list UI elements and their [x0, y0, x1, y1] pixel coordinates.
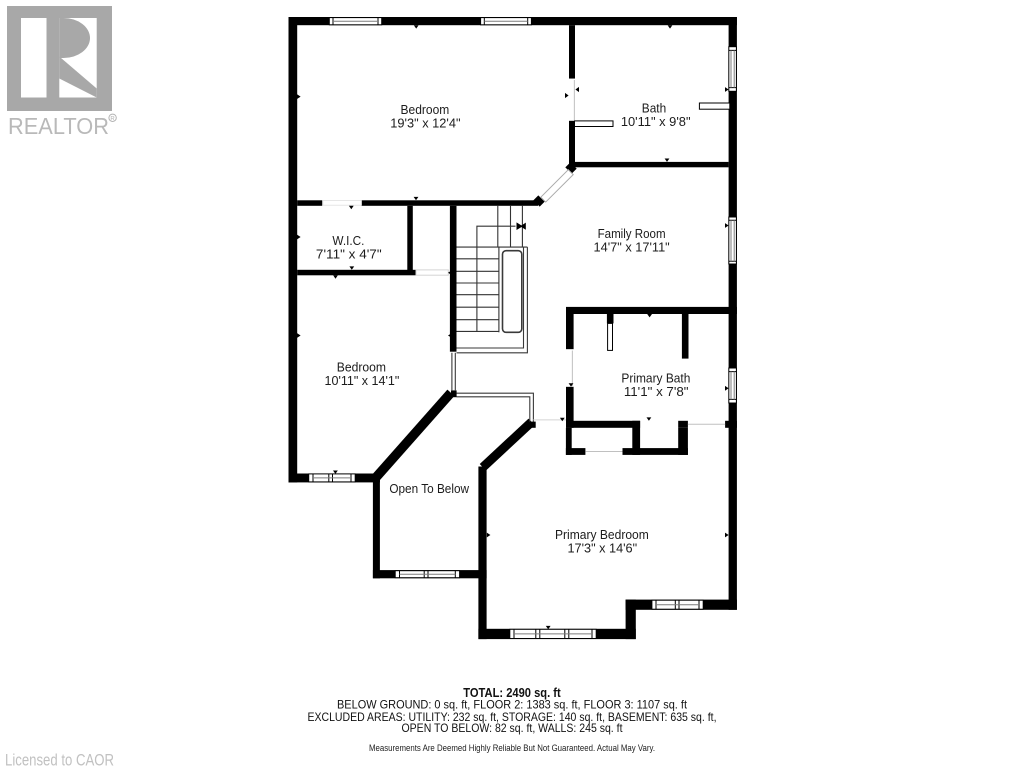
svg-text:Open To Below: Open To Below — [389, 481, 469, 496]
svg-text:OPEN TO BELOW: 82 sq. ft, WALL: OPEN TO BELOW: 82 sq. ft, WALLS: 245 sq.… — [402, 722, 624, 735]
svg-text:R: R — [110, 116, 115, 122]
svg-text:Primary Bath11'1" x 7'8": Primary Bath11'1" x 7'8" — [621, 370, 690, 398]
svg-text:REALTOR: REALTOR — [8, 113, 109, 139]
svg-text:Licensed to CAOR: Licensed to CAOR — [5, 752, 114, 768]
svg-text:Family Room14'7" x 17'11": Family Room14'7" x 17'11" — [594, 226, 671, 254]
svg-text:Measurements Are Deemed Highly: Measurements Are Deemed Highly Reliable … — [369, 743, 655, 753]
svg-text:BELOW GROUND: 0 sq. ft, FLOOR: BELOW GROUND: 0 sq. ft, FLOOR 2: 1383 sq… — [337, 699, 688, 712]
svg-text:Primary Bedroom17'3" x 14'6": Primary Bedroom17'3" x 14'6" — [555, 527, 649, 555]
